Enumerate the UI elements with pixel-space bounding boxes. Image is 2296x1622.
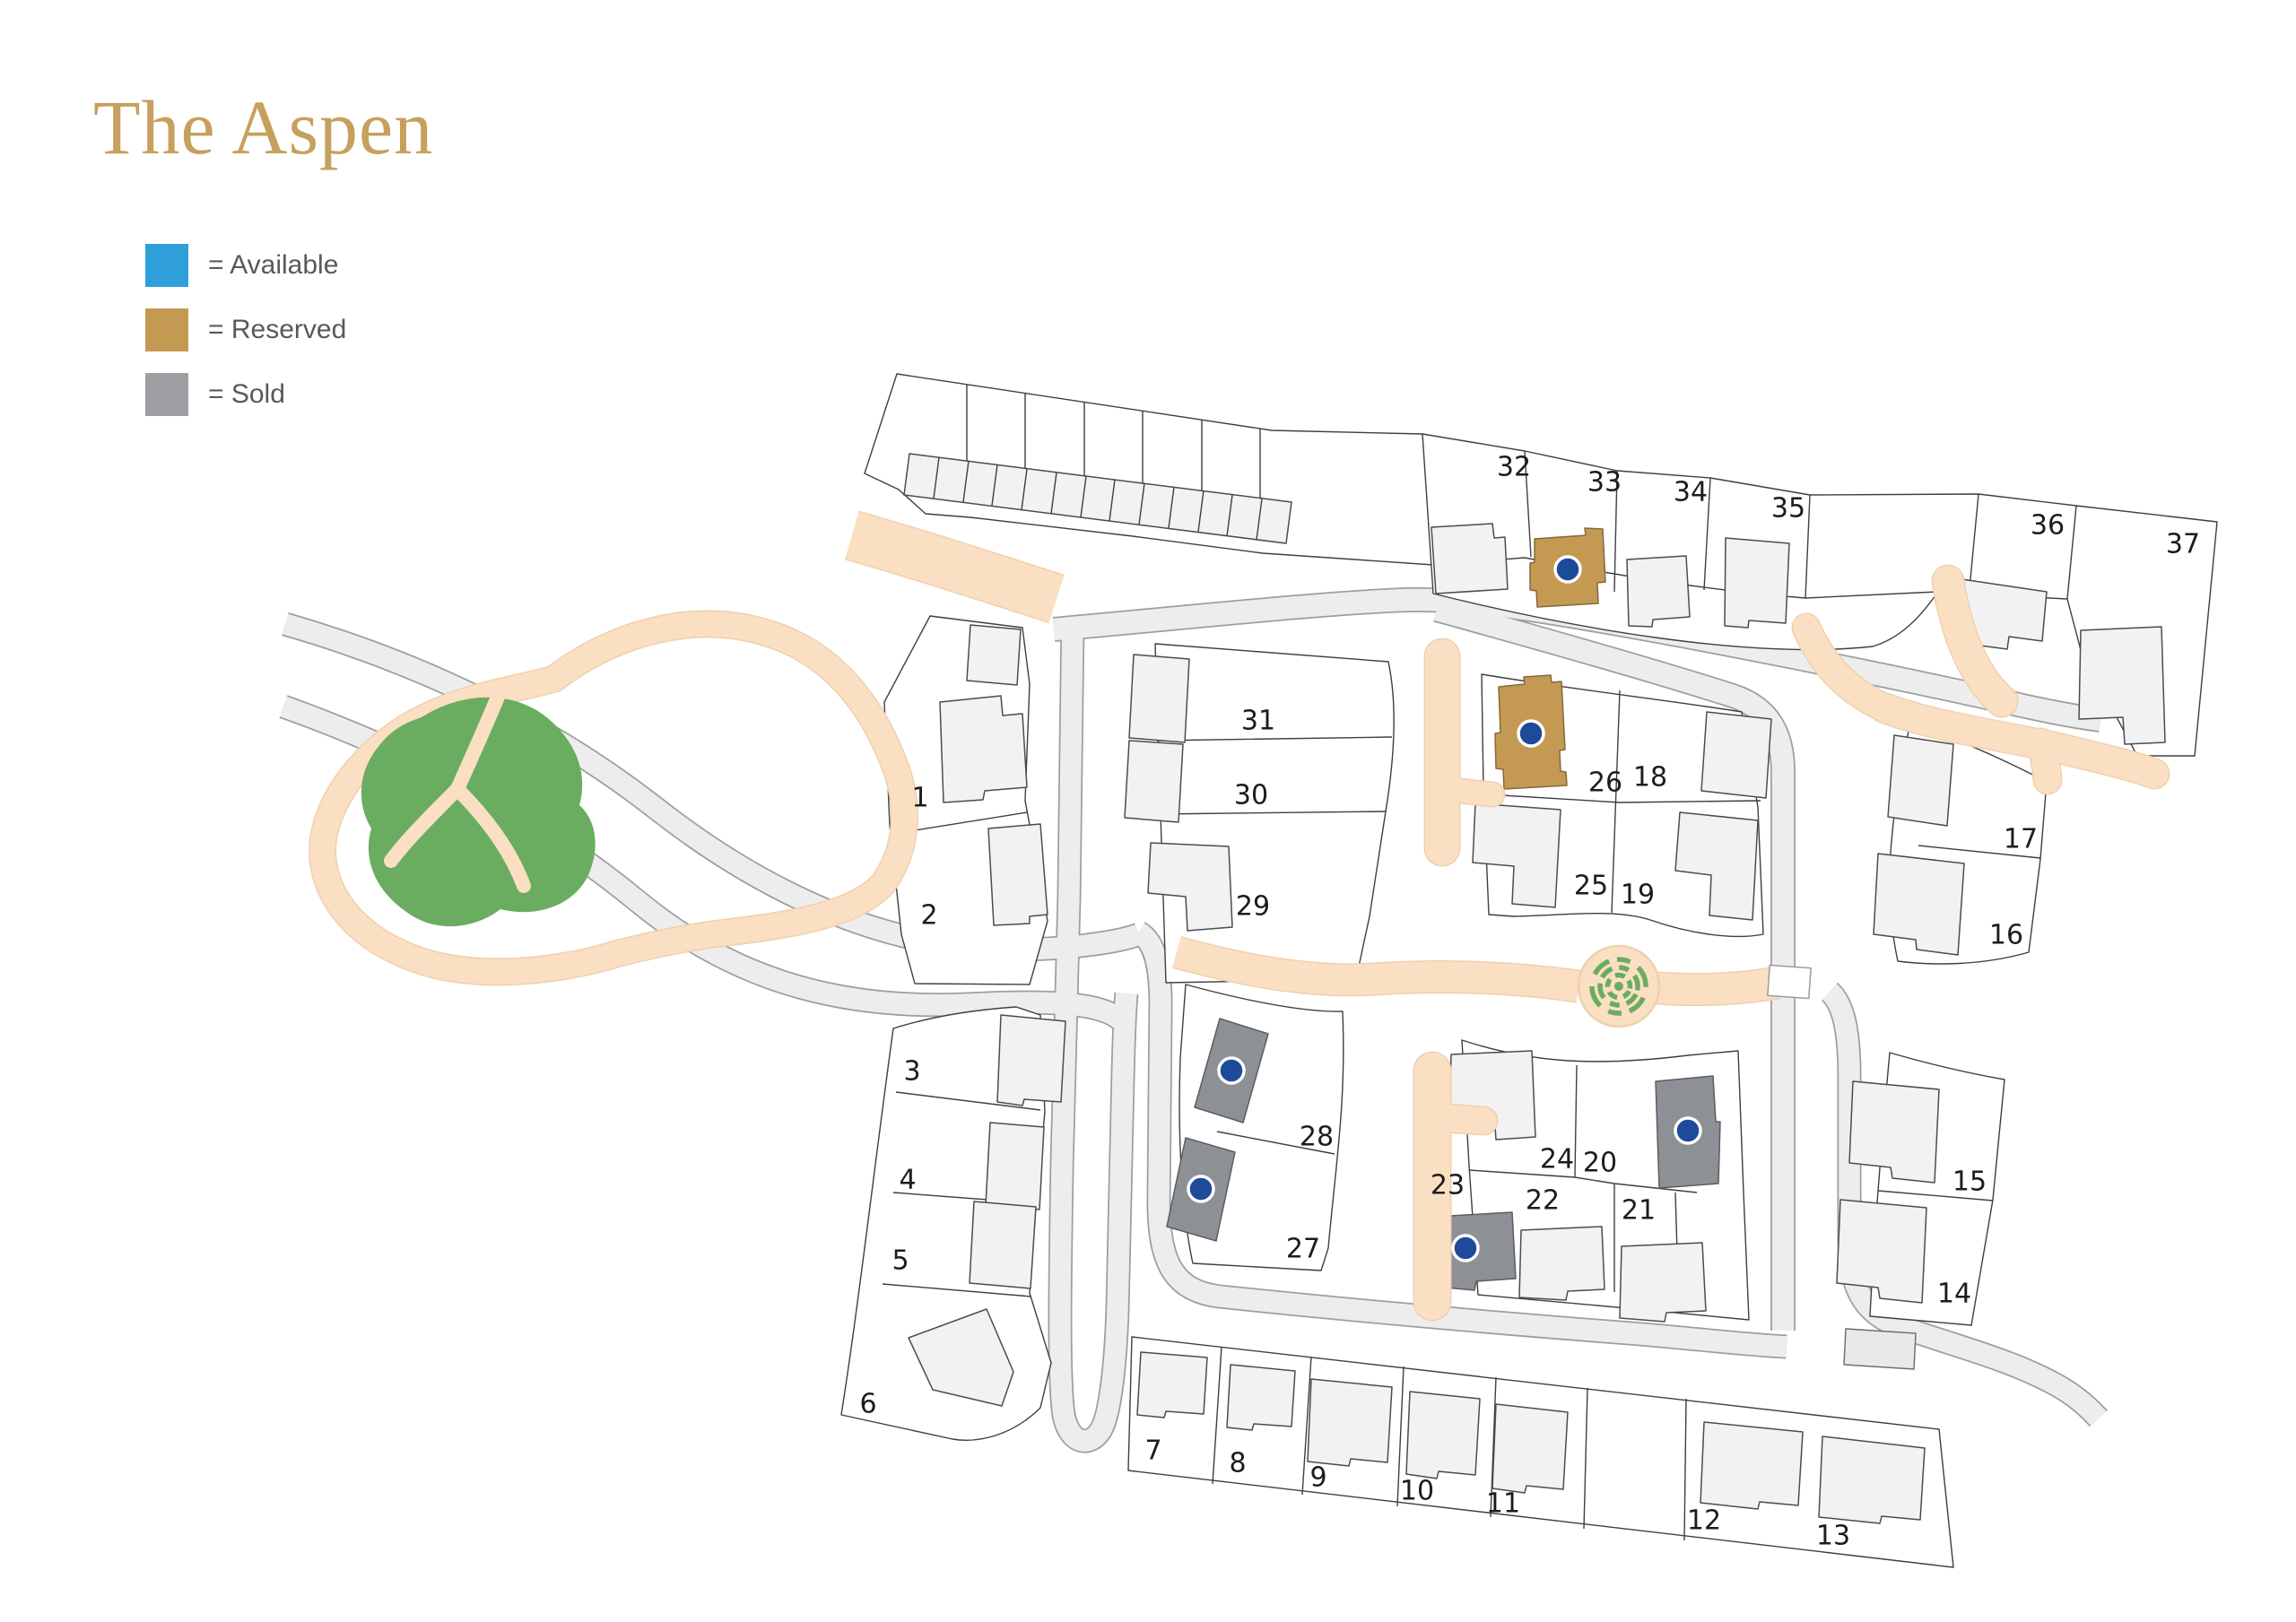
plot-number-label: 34 <box>1674 477 1708 508</box>
building <box>970 1201 1036 1288</box>
plot-number-label: 28 <box>1300 1122 1334 1153</box>
building <box>1473 803 1561 907</box>
building <box>988 824 1048 925</box>
plot-number-label: 17 <box>2004 824 2038 855</box>
plot-number-label: 2 <box>920 900 937 932</box>
building <box>1519 1227 1605 1300</box>
plot-number-label: 16 <box>1989 920 2023 951</box>
plot-number-label: 10 <box>1400 1476 1434 1507</box>
building <box>1725 538 1789 628</box>
plot-number-label: 3 <box>903 1056 920 1088</box>
legend-label-reserved: = Reserved <box>208 315 346 345</box>
building <box>1888 735 1953 826</box>
plot-number-label: 22 <box>1526 1185 1560 1217</box>
plot-status-dot <box>1555 557 1580 582</box>
building <box>1620 1243 1706 1322</box>
plot-status-dot <box>1518 721 1544 746</box>
plot-status-dot <box>1675 1118 1700 1143</box>
building <box>1227 1365 1295 1430</box>
building <box>1308 1379 1392 1466</box>
plot-number-label: 11 <box>1486 1488 1520 1520</box>
plot-number-label: 35 <box>1771 493 1805 525</box>
plot-number-label: 1 <box>911 783 928 814</box>
legend-item-available: = Available <box>145 244 346 287</box>
plot-number-label: 18 <box>1633 762 1667 794</box>
building <box>1627 556 1690 627</box>
footpath <box>1177 952 1578 986</box>
building <box>1148 843 1232 931</box>
building <box>986 1123 1044 1210</box>
plot-number-label: 12 <box>1687 1505 1721 1537</box>
plot-number-label: 7 <box>1144 1436 1161 1467</box>
footpath <box>1657 983 1778 990</box>
plot-status-dot <box>1453 1236 1478 1261</box>
building <box>1819 1436 1925 1523</box>
plot-number-label: 5 <box>891 1245 909 1277</box>
building <box>1129 655 1189 742</box>
building <box>1137 1352 1207 1418</box>
plot-number-label: 14 <box>1937 1279 1971 1310</box>
building <box>997 1015 1065 1106</box>
building <box>1849 1081 1939 1183</box>
legend-item-sold: = Sold <box>145 373 346 416</box>
plot-number-label: 30 <box>1234 780 1268 811</box>
plot-number-label: 9 <box>1309 1462 1326 1494</box>
garage-building <box>1844 1329 1916 1369</box>
plot-number-label: 23 <box>1431 1170 1465 1201</box>
plot-number-label: 8 <box>1229 1448 1246 1479</box>
legend-label-available: = Available <box>208 250 338 281</box>
plot-status-dot <box>1188 1176 1213 1201</box>
building <box>967 625 1021 685</box>
plot-number-label: 31 <box>1241 706 1275 737</box>
plot-number-label: 4 <box>899 1165 916 1196</box>
plot-number-label: 13 <box>1816 1521 1850 1552</box>
road <box>1060 619 1126 1441</box>
building <box>1125 741 1183 822</box>
plot-number-label: 37 <box>2166 529 2200 560</box>
footpath <box>1442 789 1492 794</box>
plot-number-label: 25 <box>1574 871 1608 902</box>
footpath <box>2041 742 2048 780</box>
legend: = Available = Reserved = Sold <box>145 244 346 438</box>
available-swatch <box>145 244 188 287</box>
building <box>1701 712 1771 798</box>
plot-number-label: 36 <box>2031 510 2065 542</box>
plot-number-label: 21 <box>1622 1195 1656 1227</box>
plot-number-label: 20 <box>1583 1148 1617 1179</box>
building <box>1492 1404 1568 1493</box>
maze-roundabout <box>1578 946 1659 1027</box>
footpath <box>1432 1117 1483 1121</box>
plot-number-label: 6 <box>859 1389 876 1420</box>
plot-number-label: 32 <box>1497 452 1531 483</box>
plot-status-dot <box>1219 1058 1244 1083</box>
legend-item-reserved: = Reserved <box>145 308 346 351</box>
plot-number-label: 27 <box>1286 1234 1320 1265</box>
building <box>1874 854 1964 955</box>
plot-number-label: 15 <box>1952 1167 1987 1198</box>
legend-label-sold: = Sold <box>208 379 285 410</box>
sold-swatch <box>145 373 188 416</box>
plot-number-label: 33 <box>1587 467 1622 499</box>
site-plan-page: 1234567891011121314151617181920212223242… <box>0 0 2296 1622</box>
reserved-swatch <box>145 308 188 351</box>
page-title: The Aspen <box>93 82 433 172</box>
footpath <box>852 535 1057 599</box>
plot-number-label: 29 <box>1236 891 1270 923</box>
plot-number-label: 19 <box>1621 880 1655 911</box>
building <box>1406 1392 1480 1479</box>
plot-number-label: 24 <box>1540 1144 1574 1175</box>
plot-number-label: 26 <box>1588 768 1622 799</box>
building <box>1700 1422 1803 1509</box>
path-crossing <box>1768 965 1811 998</box>
